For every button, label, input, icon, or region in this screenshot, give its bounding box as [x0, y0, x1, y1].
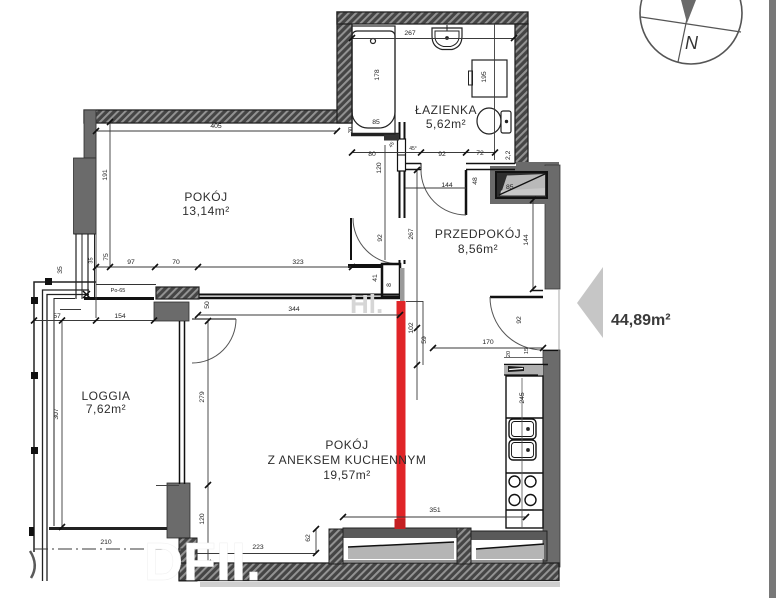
svg-text:13,14m²: 13,14m²: [182, 204, 230, 218]
svg-text:92: 92: [377, 234, 384, 242]
svg-text:323: 323: [292, 259, 304, 266]
svg-text:102: 102: [408, 322, 415, 334]
svg-text:57: 57: [53, 313, 61, 320]
svg-text:LOGGIA: LOGGIA: [81, 389, 130, 403]
svg-text:DFII.: DFII.: [144, 532, 261, 592]
svg-text:45°: 45°: [409, 146, 417, 152]
svg-text:8,56m²: 8,56m²: [458, 242, 498, 256]
svg-text:279: 279: [199, 391, 206, 403]
svg-text:307: 307: [53, 408, 60, 420]
svg-text:35: 35: [57, 266, 64, 274]
svg-text:44,89m²: 44,89m²: [611, 312, 671, 329]
svg-text:8: 8: [386, 283, 393, 287]
svg-text:97: 97: [127, 259, 135, 266]
svg-text:267: 267: [408, 228, 415, 240]
svg-text:170: 170: [482, 339, 494, 346]
svg-text:2,2: 2,2: [505, 150, 512, 160]
svg-text:POKÓJ: POKÓJ: [325, 437, 368, 452]
svg-text:19,57m²: 19,57m²: [323, 468, 371, 482]
svg-text:35: 35: [89, 257, 95, 263]
svg-text:195: 195: [481, 71, 488, 83]
svg-text:72: 72: [476, 150, 484, 157]
svg-text:ŁAZIENKA: ŁAZIENKA: [415, 103, 477, 117]
svg-text:85: 85: [506, 184, 514, 191]
svg-text:178: 178: [374, 69, 381, 81]
svg-text:41: 41: [372, 274, 379, 282]
svg-text:344: 344: [288, 306, 300, 313]
svg-text:92: 92: [438, 151, 446, 158]
svg-text:15: 15: [524, 348, 530, 354]
svg-text:30: 30: [348, 127, 354, 133]
svg-text:144: 144: [523, 234, 530, 246]
svg-text:245: 245: [519, 392, 526, 404]
svg-text:120: 120: [199, 513, 206, 525]
svg-text:85: 85: [372, 119, 380, 126]
svg-text:267: 267: [404, 30, 416, 37]
svg-text:48: 48: [472, 177, 479, 185]
svg-text:20: 20: [506, 351, 512, 357]
svg-text:405: 405: [210, 123, 222, 130]
svg-text:Hl.: Hl.: [350, 289, 383, 319]
svg-text:5,62m²: 5,62m²: [426, 117, 466, 131]
svg-text:351: 351: [429, 507, 441, 514]
svg-text:45: 45: [388, 141, 396, 149]
svg-text:75: 75: [103, 253, 110, 261]
svg-text:7,62m²: 7,62m²: [86, 402, 126, 416]
svg-text:N: N: [685, 33, 699, 53]
svg-text:144: 144: [441, 182, 453, 189]
svg-text:POKÓJ: POKÓJ: [184, 189, 227, 204]
svg-text:62: 62: [305, 534, 312, 542]
svg-text:Z ANEKSEM KUCHENNYM: Z ANEKSEM KUCHENNYM: [268, 453, 427, 467]
svg-text:210: 210: [100, 539, 112, 546]
svg-text:92: 92: [516, 316, 523, 324]
svg-text:70: 70: [172, 259, 180, 266]
svg-text:154: 154: [114, 313, 126, 320]
svg-text:120: 120: [376, 162, 383, 174]
svg-text:50: 50: [204, 301, 211, 309]
svg-text:191: 191: [102, 169, 109, 181]
svg-text:59: 59: [421, 336, 428, 344]
svg-text:PRZEDPOKÓJ: PRZEDPOKÓJ: [435, 226, 521, 241]
svg-text:80: 80: [368, 151, 376, 158]
svg-text:Po-65: Po-65: [111, 288, 126, 294]
